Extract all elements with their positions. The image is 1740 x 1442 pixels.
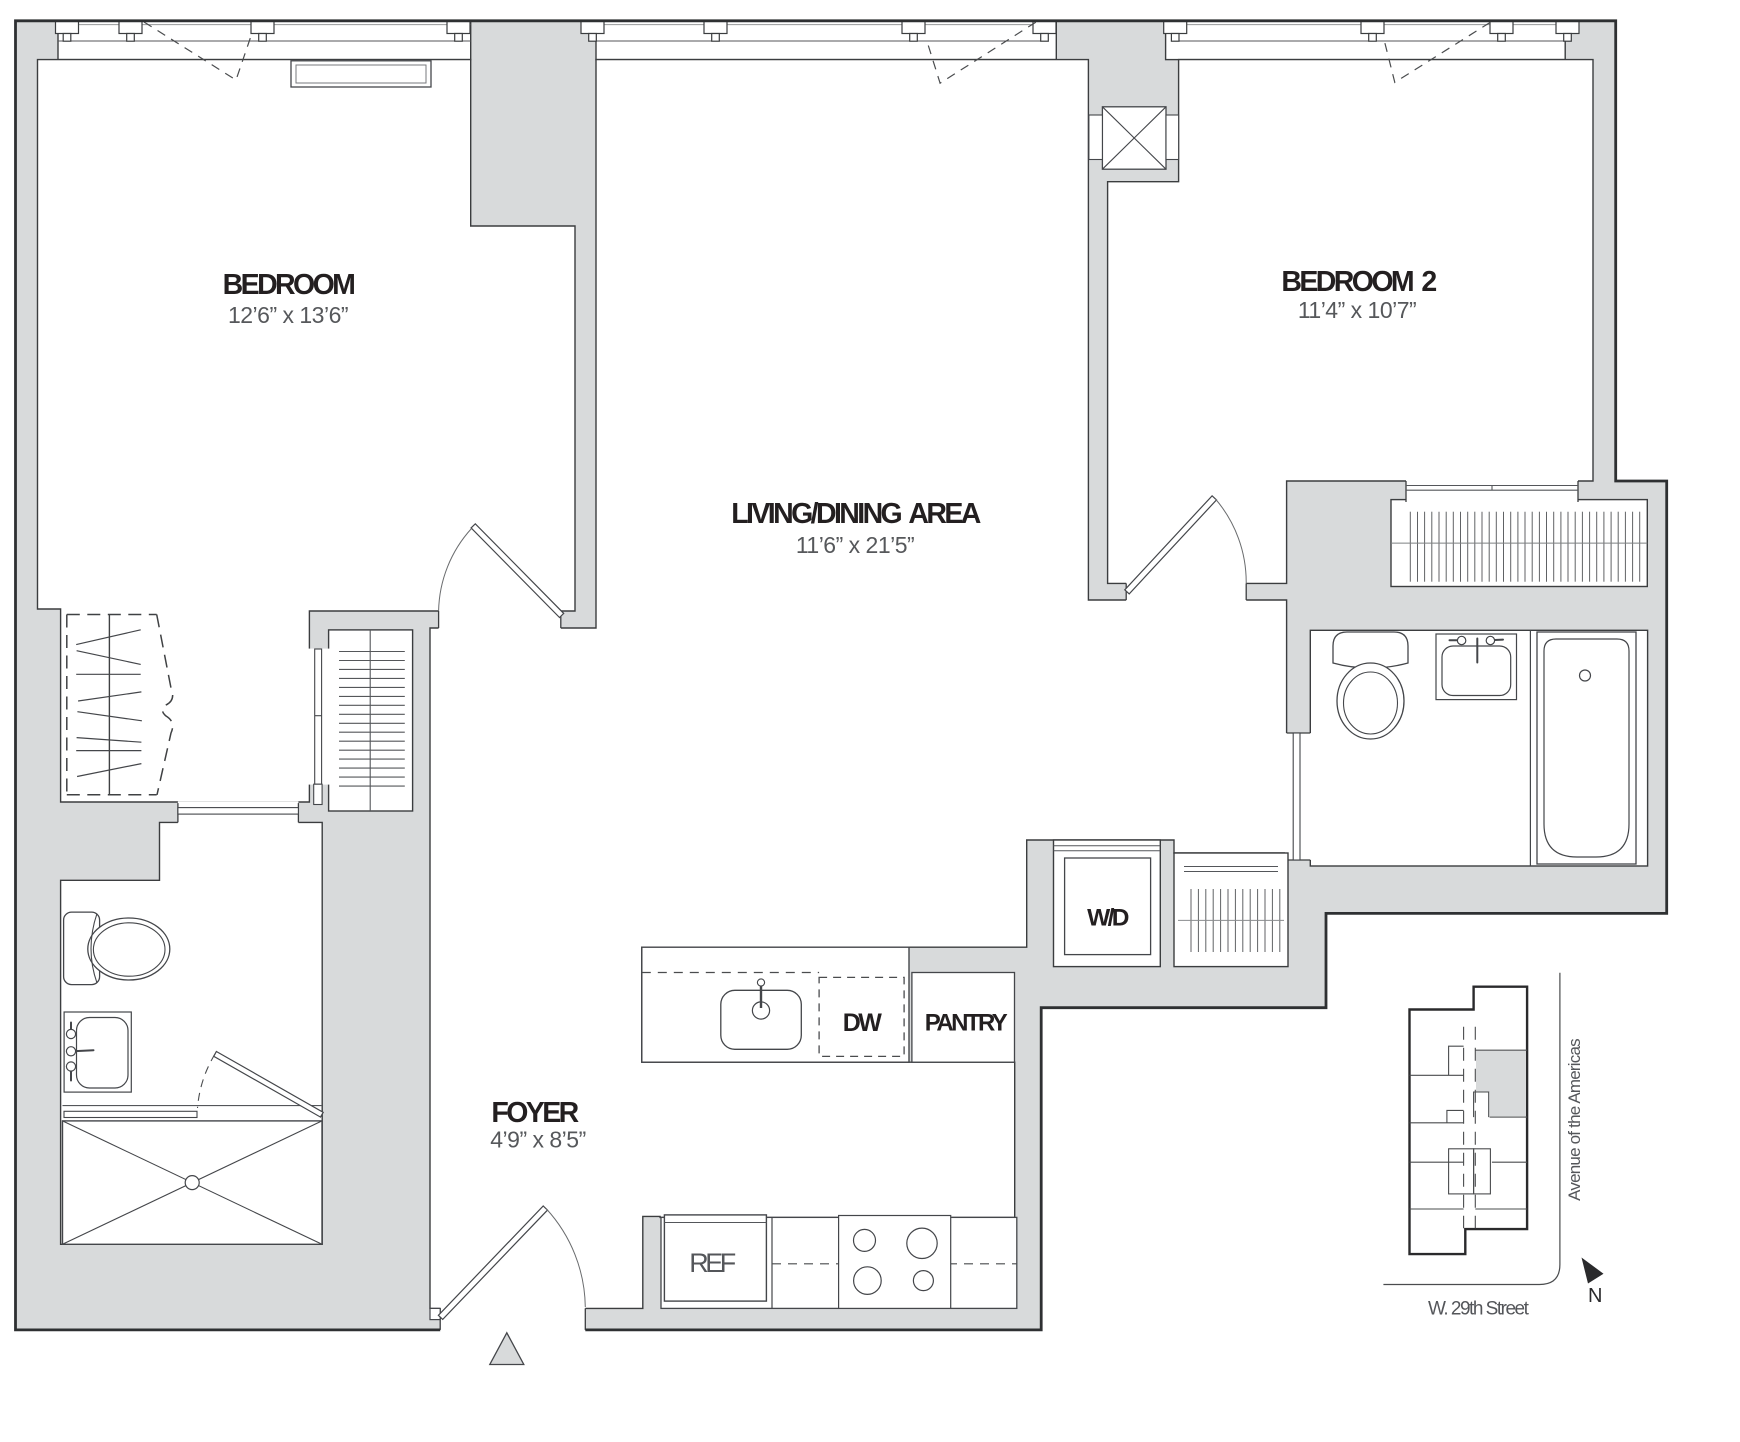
svg-text:Avenue of the Americas: Avenue of the Americas [1565, 1039, 1584, 1201]
svg-text:REF: REF [689, 1248, 736, 1278]
svg-text:W. 29th Street: W. 29th Street [1428, 1299, 1530, 1320]
svg-text:W/D: W/D [1087, 905, 1129, 932]
svg-text:4’9” x 8’5”: 4’9” x 8’5” [490, 1127, 585, 1153]
svg-text:PANTRY: PANTRY [925, 1010, 1008, 1037]
svg-text:11’6” x 21’5”: 11’6” x 21’5” [796, 532, 914, 558]
svg-text:BEDROOM: BEDROOM [223, 269, 354, 301]
svg-text:DW: DW [843, 1009, 882, 1037]
svg-text:11’4” x 10’7”: 11’4” x 10’7” [1298, 297, 1416, 323]
svg-text:FOYER: FOYER [491, 1097, 578, 1129]
svg-text:N: N [1588, 1285, 1602, 1307]
svg-text:12’6” x 13’6”: 12’6” x 13’6” [228, 302, 348, 328]
svg-text:LIVING/DINING AREA: LIVING/DINING AREA [731, 498, 981, 530]
svg-text:BEDROOM 2: BEDROOM 2 [1281, 266, 1436, 298]
